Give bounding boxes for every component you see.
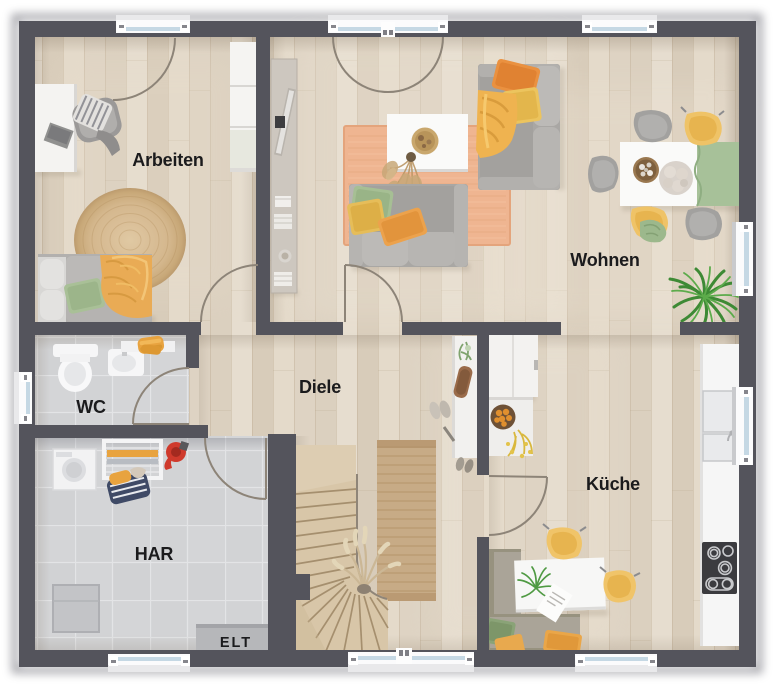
svg-text:ELT: ELT xyxy=(220,635,252,651)
svg-text:Wohnen: Wohnen xyxy=(570,250,639,270)
svg-text:Arbeiten: Arbeiten xyxy=(132,150,203,170)
svg-text:Küche: Küche xyxy=(586,474,640,494)
svg-text:WC: WC xyxy=(76,397,106,417)
svg-text:Diele: Diele xyxy=(299,377,341,397)
svg-text:HAR: HAR xyxy=(135,544,174,564)
